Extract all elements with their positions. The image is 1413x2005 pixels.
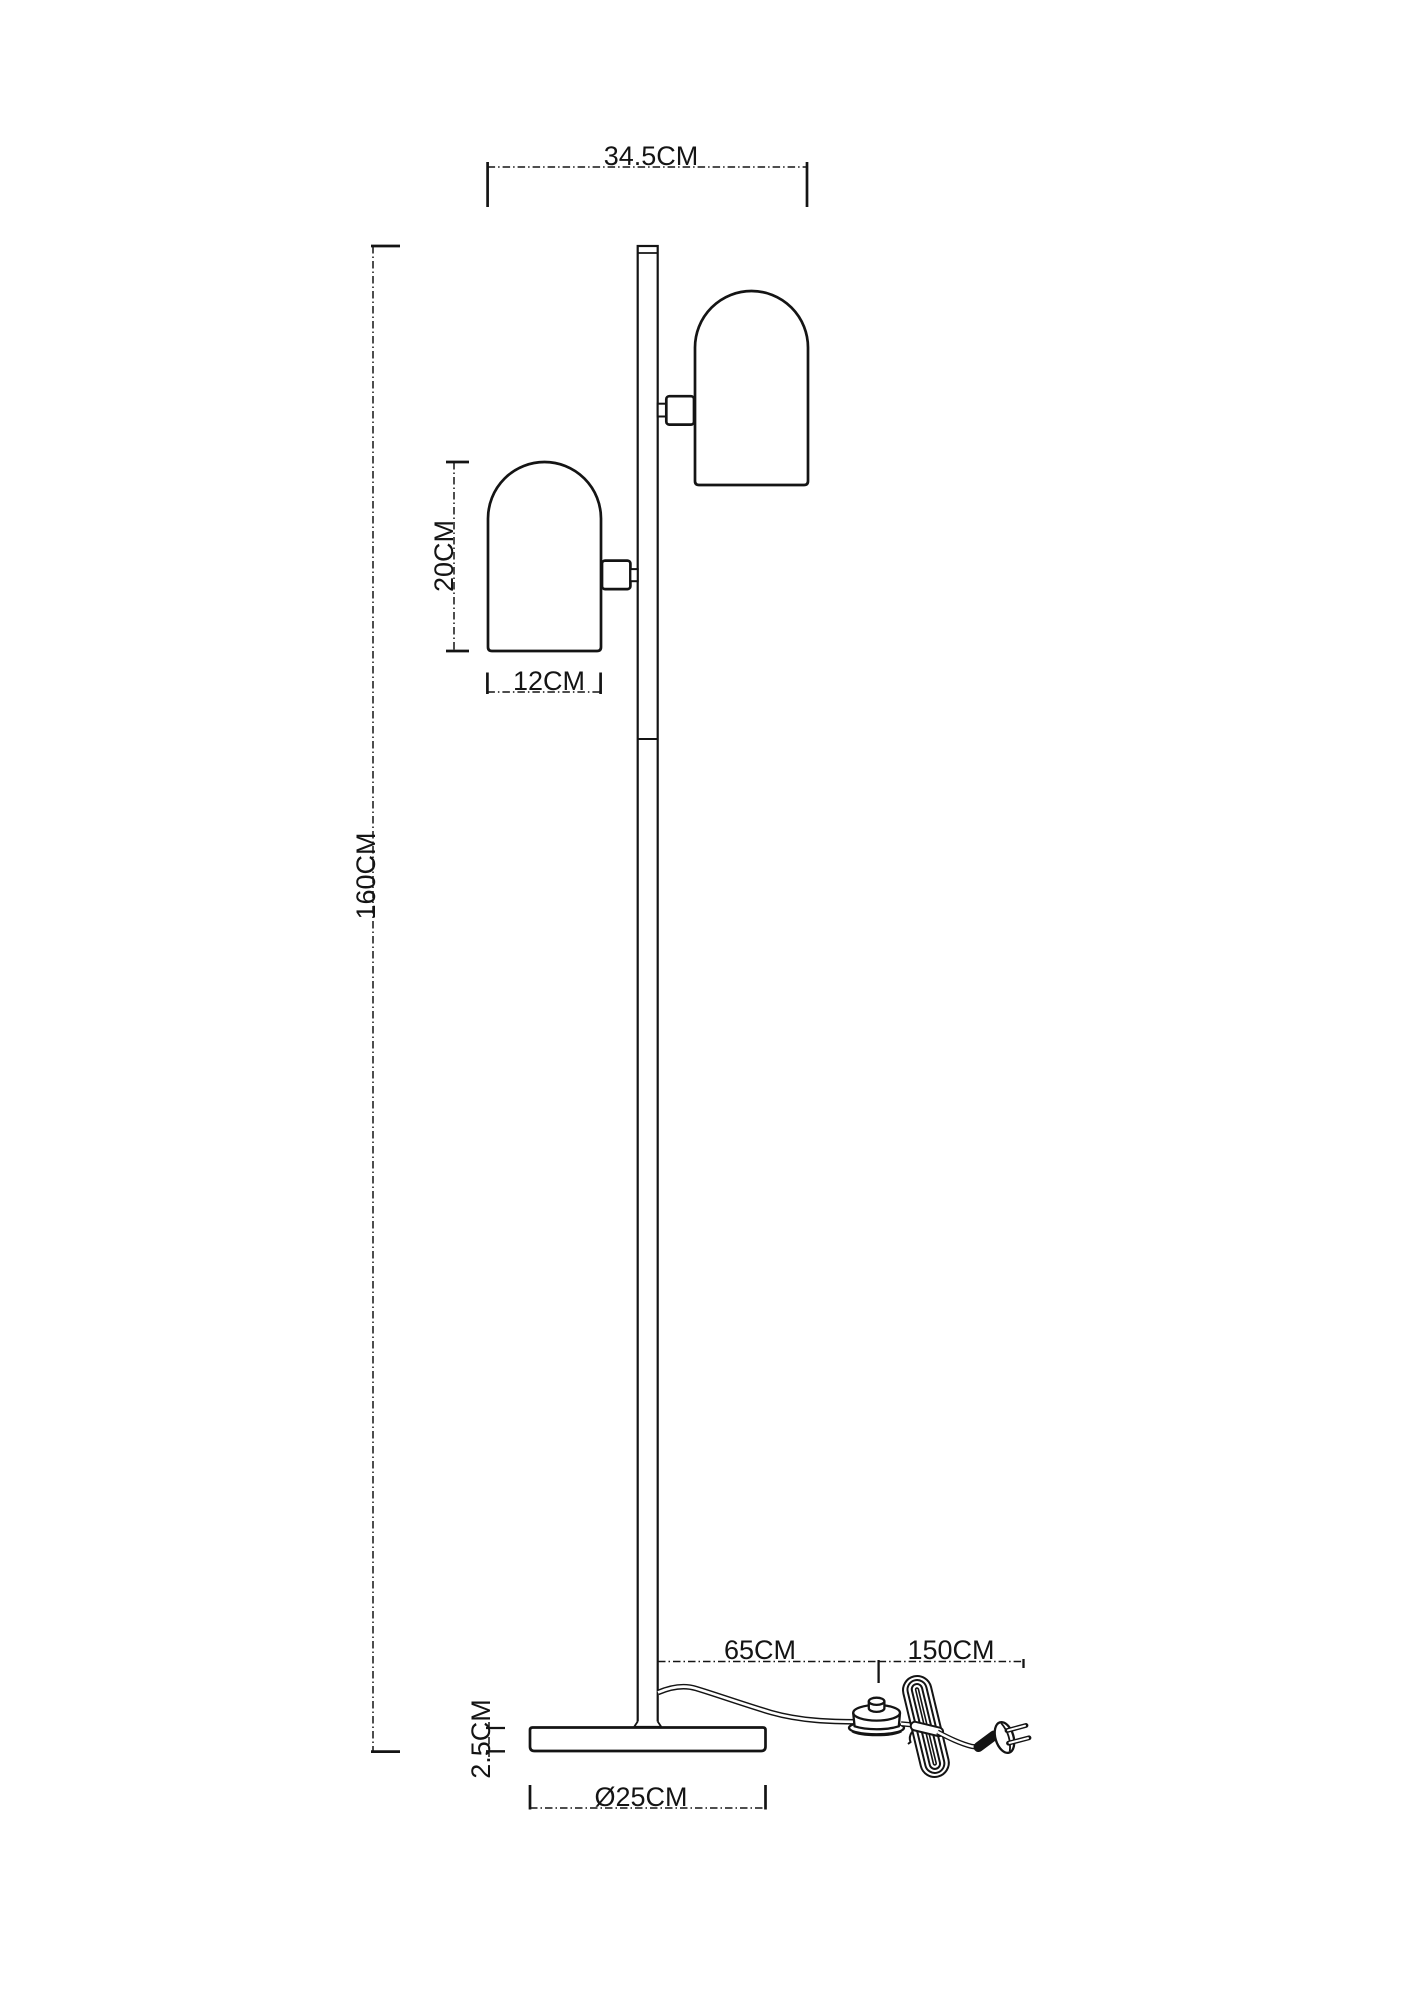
- svg-text:65CM: 65CM: [724, 1635, 796, 1665]
- svg-text:160CM: 160CM: [351, 832, 381, 919]
- svg-text:20CM: 20CM: [429, 520, 459, 592]
- svg-text:12CM: 12CM: [513, 666, 585, 696]
- svg-text:34.5CM: 34.5CM: [604, 141, 699, 171]
- svg-text:Ø25CM: Ø25CM: [594, 1782, 687, 1812]
- svg-text:2.5CM: 2.5CM: [466, 1699, 496, 1779]
- svg-text:150CM: 150CM: [907, 1635, 994, 1665]
